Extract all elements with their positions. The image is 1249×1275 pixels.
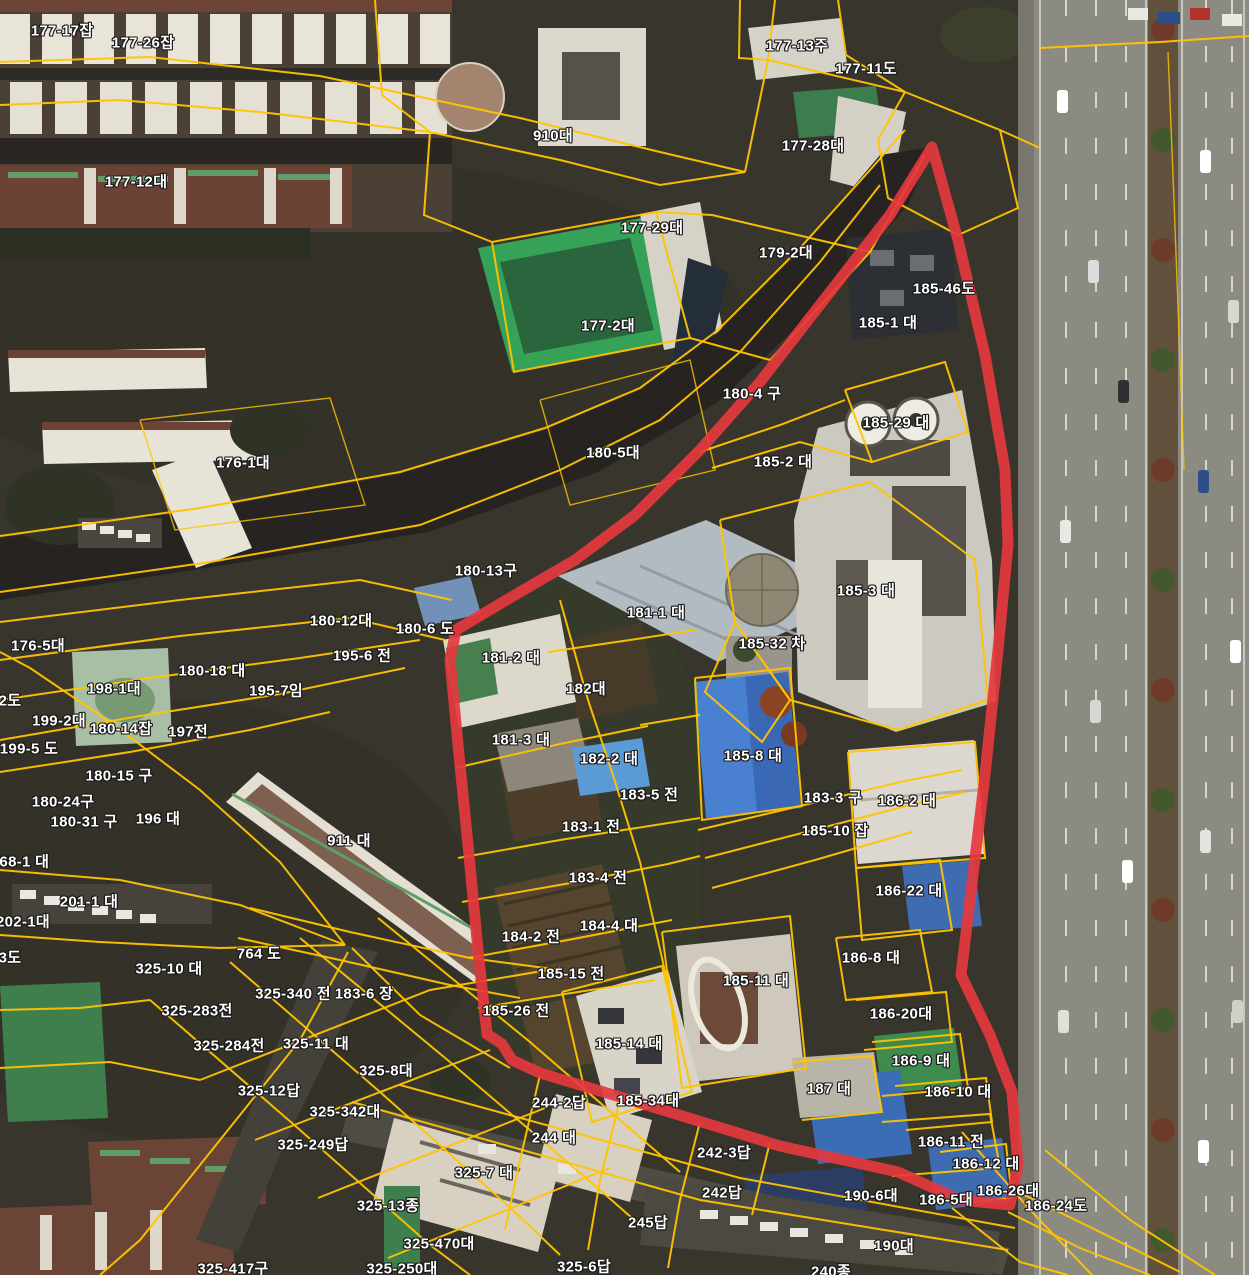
parcel-label: 764 도 (237, 943, 282, 964)
parcel-label: 240종 (811, 1261, 851, 1275)
parcel-label: 325-417구 (197, 1258, 268, 1275)
parcel-label: 184-4 대 (580, 915, 638, 936)
parcel-label: 182대 (566, 678, 606, 699)
parcel-label: 185-15 전 (537, 963, 604, 984)
parcel-label: 181-1 대 (627, 602, 685, 623)
parcel-label: 185-3 대 (837, 580, 895, 601)
parcel-label: 190-6대 (844, 1185, 898, 1206)
parcel-label: 180-31 구 (50, 811, 117, 832)
parcel-label: 177-26잡 (112, 32, 175, 53)
parcel-label: 180-24구 (32, 791, 95, 812)
parcel-label: 325-10 대 (135, 958, 202, 979)
parcel-label: 325-6답 (557, 1256, 611, 1275)
parcel-label: 2도 (0, 690, 21, 711)
parcel-label: 185-8 대 (724, 745, 782, 766)
parcel-label: 176-5대 (11, 635, 65, 656)
parcel-label: 325-249답 (277, 1134, 348, 1155)
parcel-label: 199-2대 (32, 710, 86, 731)
parcel-label: 177-2대 (581, 315, 635, 336)
parcel-label: 190대 (874, 1235, 914, 1256)
parcel-label: 185-10 잡 (801, 820, 868, 841)
parcel-label: 183-6 장 (335, 983, 393, 1004)
parcel-label: 180-12대 (310, 610, 373, 631)
parcel-label: 325-7 대 (455, 1162, 513, 1183)
parcel-label: 185-26 전 (482, 1000, 549, 1021)
parcel-label: 180-18 대 (178, 660, 245, 681)
parcel-label: 201-1 대 (60, 891, 118, 912)
parcel-label: 181-2 대 (482, 647, 540, 668)
parcel-label: 325-8대 (359, 1060, 413, 1081)
parcel-label: 186-22 대 (875, 880, 942, 901)
parcel-label: 198-1대 (87, 678, 141, 699)
parcel-label: 186-11 전 (918, 1131, 984, 1152)
parcel-label: 183-1 전 (562, 816, 620, 837)
parcel-label: 185-14 대 (595, 1033, 662, 1054)
parcel-label: 177-12대 (105, 171, 168, 192)
parcel-label: 177-11도 (835, 58, 897, 79)
parcel-label: 180-13구 (455, 560, 518, 581)
parcel-label: 183-3 구 (804, 787, 862, 808)
parcel-label: 244-2답 (532, 1092, 586, 1113)
parcel-label: 242답 (702, 1182, 742, 1203)
parcel-label: 185-11 대 (723, 970, 789, 991)
parcel-label: 325-12답 (238, 1080, 301, 1101)
parcel-label: 202-1대 (0, 911, 50, 932)
parcel-label: 325-283전 (161, 1000, 232, 1021)
parcel-label: 180-4 구 (723, 383, 781, 404)
parcel-label: 185-2 대 (754, 451, 812, 472)
parcel-label: 768-1 대 (0, 851, 49, 872)
parcel-label: 187 대 (807, 1078, 852, 1099)
parcel-label: 177-17잡 (31, 20, 94, 41)
parcel-label: 180-5대 (586, 442, 640, 463)
parcel-label: 185-34대 (617, 1090, 680, 1111)
parcel-label: 325-250대 (366, 1258, 437, 1275)
parcel-label: 182-2 대 (580, 748, 638, 769)
parcel-label: 177-28대 (782, 135, 845, 156)
parcel-label: 186-9 대 (892, 1050, 950, 1071)
parcel-label: 186-12 대 (952, 1153, 1019, 1174)
parcel-label: 185-46도 (913, 278, 976, 299)
parcel-label: 179-2대 (759, 242, 813, 263)
parcel-label: 183-5 전 (620, 784, 678, 805)
parcel-label: 186-2 대 (878, 790, 936, 811)
parcel-label: 180-6 도 (396, 618, 454, 639)
parcel-label: 181-3 대 (492, 729, 550, 750)
parcel-label: 185-29 대 (862, 412, 929, 433)
parcel-label: 242-3답 (697, 1142, 751, 1163)
parcel-label: 199-5 도 (0, 738, 58, 759)
parcel-label: 186-8 대 (842, 947, 900, 968)
parcel-label: 245답 (628, 1212, 668, 1233)
parcel-label: 325-470대 (403, 1233, 474, 1254)
parcel-label: 183-4 전 (569, 867, 627, 888)
parcel-label: 325-284전 (193, 1035, 264, 1056)
parcel-label: 325-13종 (357, 1195, 420, 1216)
parcel-label: 325-342대 (309, 1101, 380, 1122)
parcel-label: 325-11 대 (283, 1033, 349, 1054)
parcel-label: 910대 (533, 125, 573, 146)
parcel-label: 911 대 (327, 830, 371, 851)
parcel-label: 180-14잡 (90, 718, 153, 739)
parcel-label: 325-340 전 (255, 983, 331, 1004)
parcel-label: 185-32 차 (738, 633, 805, 654)
parcel-label: 195-6 전 (333, 645, 391, 666)
parcel-label: 196 대 (136, 808, 181, 829)
parcel-label: 186-20대 (870, 1003, 933, 1024)
cadastral-map[interactable]: 177-17잡177-26잡177-13주177-11도910대177-28대1… (0, 0, 1249, 1275)
parcel-label: 3도 (0, 947, 21, 968)
parcel-label: 177-13주 (766, 35, 829, 56)
parcel-label: 186-5대 (919, 1189, 973, 1210)
parcel-labels: 177-17잡177-26잡177-13주177-11도910대177-28대1… (0, 0, 1249, 1275)
parcel-label: 186-24도 (1025, 1195, 1088, 1216)
parcel-label: 197전 (168, 721, 208, 742)
parcel-label: 184-2 전 (502, 926, 560, 947)
parcel-label: 244 대 (532, 1127, 577, 1148)
parcel-label: 195-7임 (249, 680, 303, 701)
parcel-label: 177-29대 (621, 217, 684, 238)
parcel-label: 186-10 대 (924, 1081, 991, 1102)
parcel-label: 176-1대 (216, 452, 270, 473)
parcel-label: 180-15 구 (85, 765, 152, 786)
parcel-label: 185-1 대 (859, 312, 917, 333)
